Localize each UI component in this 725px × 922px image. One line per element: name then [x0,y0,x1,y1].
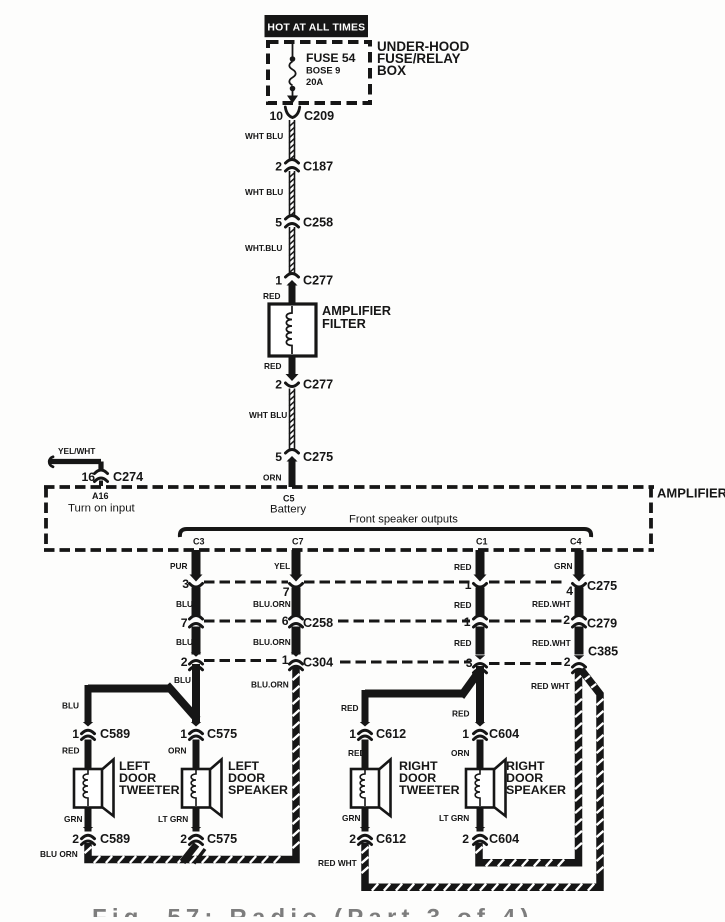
svg-text:C604: C604 [489,832,519,846]
svg-text:1: 1 [464,615,471,629]
svg-text:C3: C3 [193,537,205,547]
svg-text:C589: C589 [100,727,130,741]
svg-text:3: 3 [182,577,189,591]
svg-text:GRN: GRN [64,814,82,824]
svg-text:RED.WHT: RED.WHT [532,599,571,609]
svg-text:RED: RED [452,709,470,719]
svg-text:GRN: GRN [342,813,360,823]
svg-text:C7: C7 [292,537,304,547]
svg-text:C277: C277 [303,378,333,392]
svg-text:WHT BLU: WHT BLU [245,131,283,141]
svg-text:LT GRN: LT GRN [439,813,469,823]
svg-text:RED: RED [264,361,282,371]
svg-text:Front speaker outputs: Front speaker outputs [349,514,458,526]
svg-text:BLU: BLU [176,637,193,647]
svg-text:1: 1 [282,653,289,667]
svg-text:BLU.ORN: BLU.ORN [253,599,291,609]
svg-text:SPEAKER: SPEAKER [228,783,288,797]
svg-text:C275: C275 [303,450,333,464]
svg-text:20A: 20A [306,76,323,87]
svg-text:10: 10 [269,109,283,123]
svg-text:5: 5 [275,216,282,230]
svg-text:7: 7 [283,585,290,599]
svg-text:1: 1 [462,727,469,741]
svg-text:C575: C575 [207,832,237,846]
svg-text:BLU.ORN: BLU.ORN [253,637,291,647]
svg-text:RED: RED [263,291,281,301]
svg-text:FILTER: FILTER [322,316,366,331]
svg-text:YEL/WHT: YEL/WHT [58,446,95,456]
svg-text:C304: C304 [303,656,333,670]
svg-text:BLU: BLU [62,701,79,711]
svg-text:YEL: YEL [274,561,290,571]
svg-text:1: 1 [180,727,187,741]
svg-text:WHT BLU: WHT BLU [245,187,283,197]
svg-text:WHT.BLU: WHT.BLU [245,243,282,253]
svg-text:SPEAKER: SPEAKER [506,783,566,797]
svg-text:2: 2 [349,832,356,846]
svg-text:C275: C275 [587,579,617,593]
svg-text:RED WHT: RED WHT [318,858,357,868]
svg-text:GRN: GRN [554,561,572,571]
svg-text:6: 6 [282,614,289,628]
svg-text:1: 1 [465,578,472,592]
svg-text:C279: C279 [587,617,617,631]
svg-text:BOSE 9: BOSE 9 [306,64,340,75]
svg-text:RED.WHT: RED.WHT [532,638,571,648]
svg-text:1: 1 [349,727,356,741]
svg-text:TWEETER: TWEETER [119,783,180,797]
svg-text:C5: C5 [283,494,295,504]
svg-text:7: 7 [181,616,188,630]
svg-text:3: 3 [466,656,473,670]
svg-text:Battery: Battery [270,504,306,516]
svg-text:Turn on input: Turn on input [68,503,136,515]
svg-text:RED: RED [341,703,359,713]
svg-text:FUSE 54: FUSE 54 [306,51,356,65]
svg-text:2: 2 [72,832,79,846]
svg-text:A16: A16 [92,491,109,501]
svg-text:1: 1 [275,274,282,288]
svg-text:2: 2 [181,655,188,669]
svg-text:BLU: BLU [174,675,191,685]
svg-text:C604: C604 [489,727,519,741]
svg-text:C385: C385 [588,645,618,659]
svg-text:4: 4 [566,584,573,598]
svg-text:LT GRN: LT GRN [158,814,188,824]
svg-text:PUR: PUR [170,561,188,571]
svg-text:HOT AT ALL TIMES: HOT AT ALL TIMES [267,22,365,33]
svg-text:C4: C4 [570,537,582,547]
svg-text:BLU ORN: BLU ORN [40,849,78,859]
svg-text:RED: RED [62,746,80,756]
svg-text:2: 2 [180,832,187,846]
svg-text:C612: C612 [376,727,406,741]
svg-text:16: 16 [81,470,95,484]
svg-text:5: 5 [275,450,282,464]
svg-text:C575: C575 [207,727,237,741]
svg-text:C589: C589 [100,832,130,846]
svg-text:2: 2 [563,613,570,627]
svg-text:2: 2 [564,655,571,669]
svg-text:C209: C209 [304,109,334,123]
svg-text:BLU: BLU [176,599,193,609]
svg-text:C187: C187 [303,160,333,174]
svg-text:C277: C277 [303,274,333,288]
svg-text:C258: C258 [303,616,333,630]
svg-text:C274: C274 [113,470,143,484]
svg-text:ORN: ORN [168,746,186,756]
svg-text:TWEETER: TWEETER [399,783,460,797]
svg-text:2: 2 [275,160,282,174]
svg-text:2: 2 [462,832,469,846]
svg-text:BOX: BOX [377,63,406,78]
svg-text:Fig. 57: Radio (Part 3 of 4): Fig. 57: Radio (Part 3 of 4) [92,905,534,918]
svg-text:C612: C612 [376,832,406,846]
svg-text:ORN: ORN [263,472,281,482]
svg-text:ORN: ORN [451,748,469,758]
svg-text:AMPLIFIER: AMPLIFIER [657,486,725,501]
svg-text:2: 2 [275,378,282,392]
svg-text:WHT BLU: WHT BLU [249,410,287,420]
svg-text:RED: RED [454,562,472,572]
svg-text:1: 1 [72,727,79,741]
svg-text:RED: RED [454,600,472,610]
svg-text:C1: C1 [476,537,488,547]
svg-text:BLU.ORN: BLU.ORN [251,680,289,690]
svg-text:C258: C258 [303,216,333,230]
svg-text:RED: RED [454,638,472,648]
svg-text:RED WHT: RED WHT [531,681,570,691]
